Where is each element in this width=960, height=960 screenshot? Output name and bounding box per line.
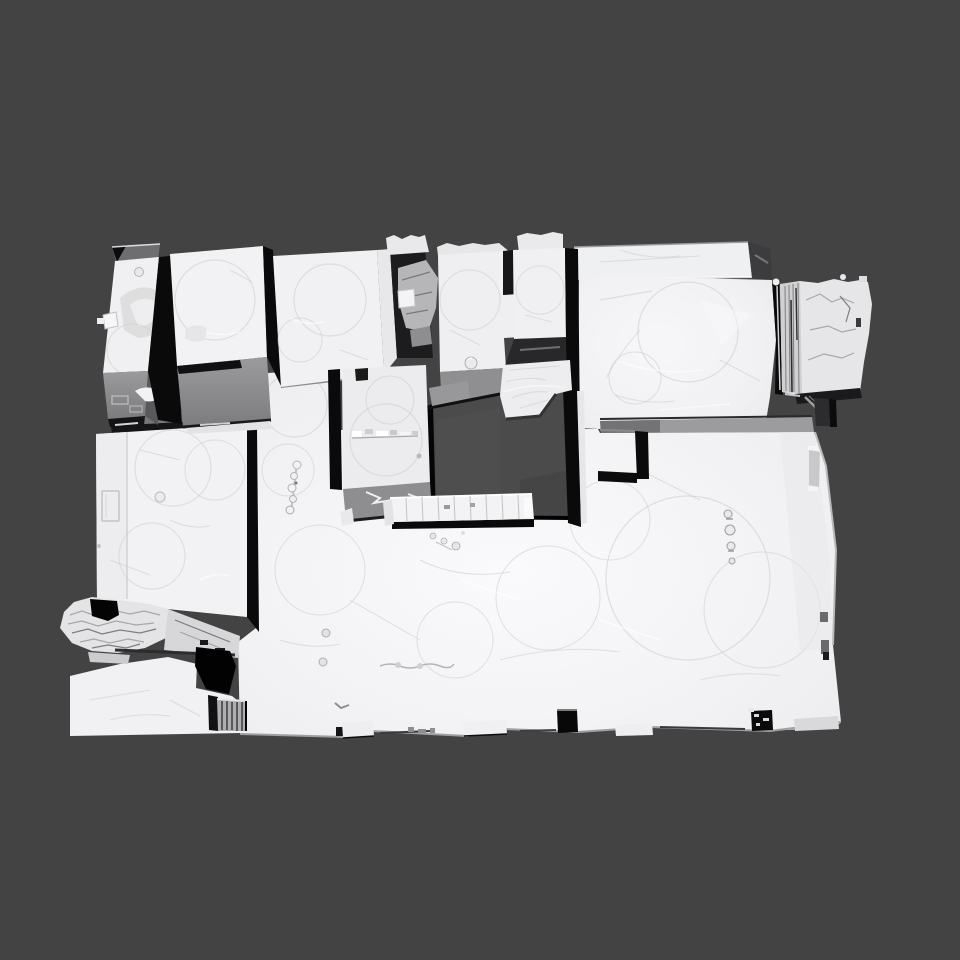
small-sphere xyxy=(155,492,165,502)
right-wing-rough xyxy=(773,274,873,404)
left-room xyxy=(96,408,259,632)
back-slab-dark-end xyxy=(748,242,772,280)
back-slab xyxy=(574,242,772,280)
small-sphere xyxy=(135,268,144,277)
stripe-object xyxy=(208,695,246,731)
mesh-viewport[interactable] xyxy=(0,0,960,960)
door-gap-left xyxy=(557,710,578,733)
center-room-f xyxy=(505,232,567,366)
shelf-unit xyxy=(383,494,534,529)
mesh-canvas xyxy=(0,0,960,960)
right-room xyxy=(578,275,783,429)
upper-room-c xyxy=(273,249,397,387)
app-window xyxy=(0,0,960,960)
upper-room-b xyxy=(170,246,271,434)
indoor-scan-mesh xyxy=(60,232,872,738)
left-room-crevice xyxy=(247,424,259,632)
door-gap-right xyxy=(751,710,773,731)
